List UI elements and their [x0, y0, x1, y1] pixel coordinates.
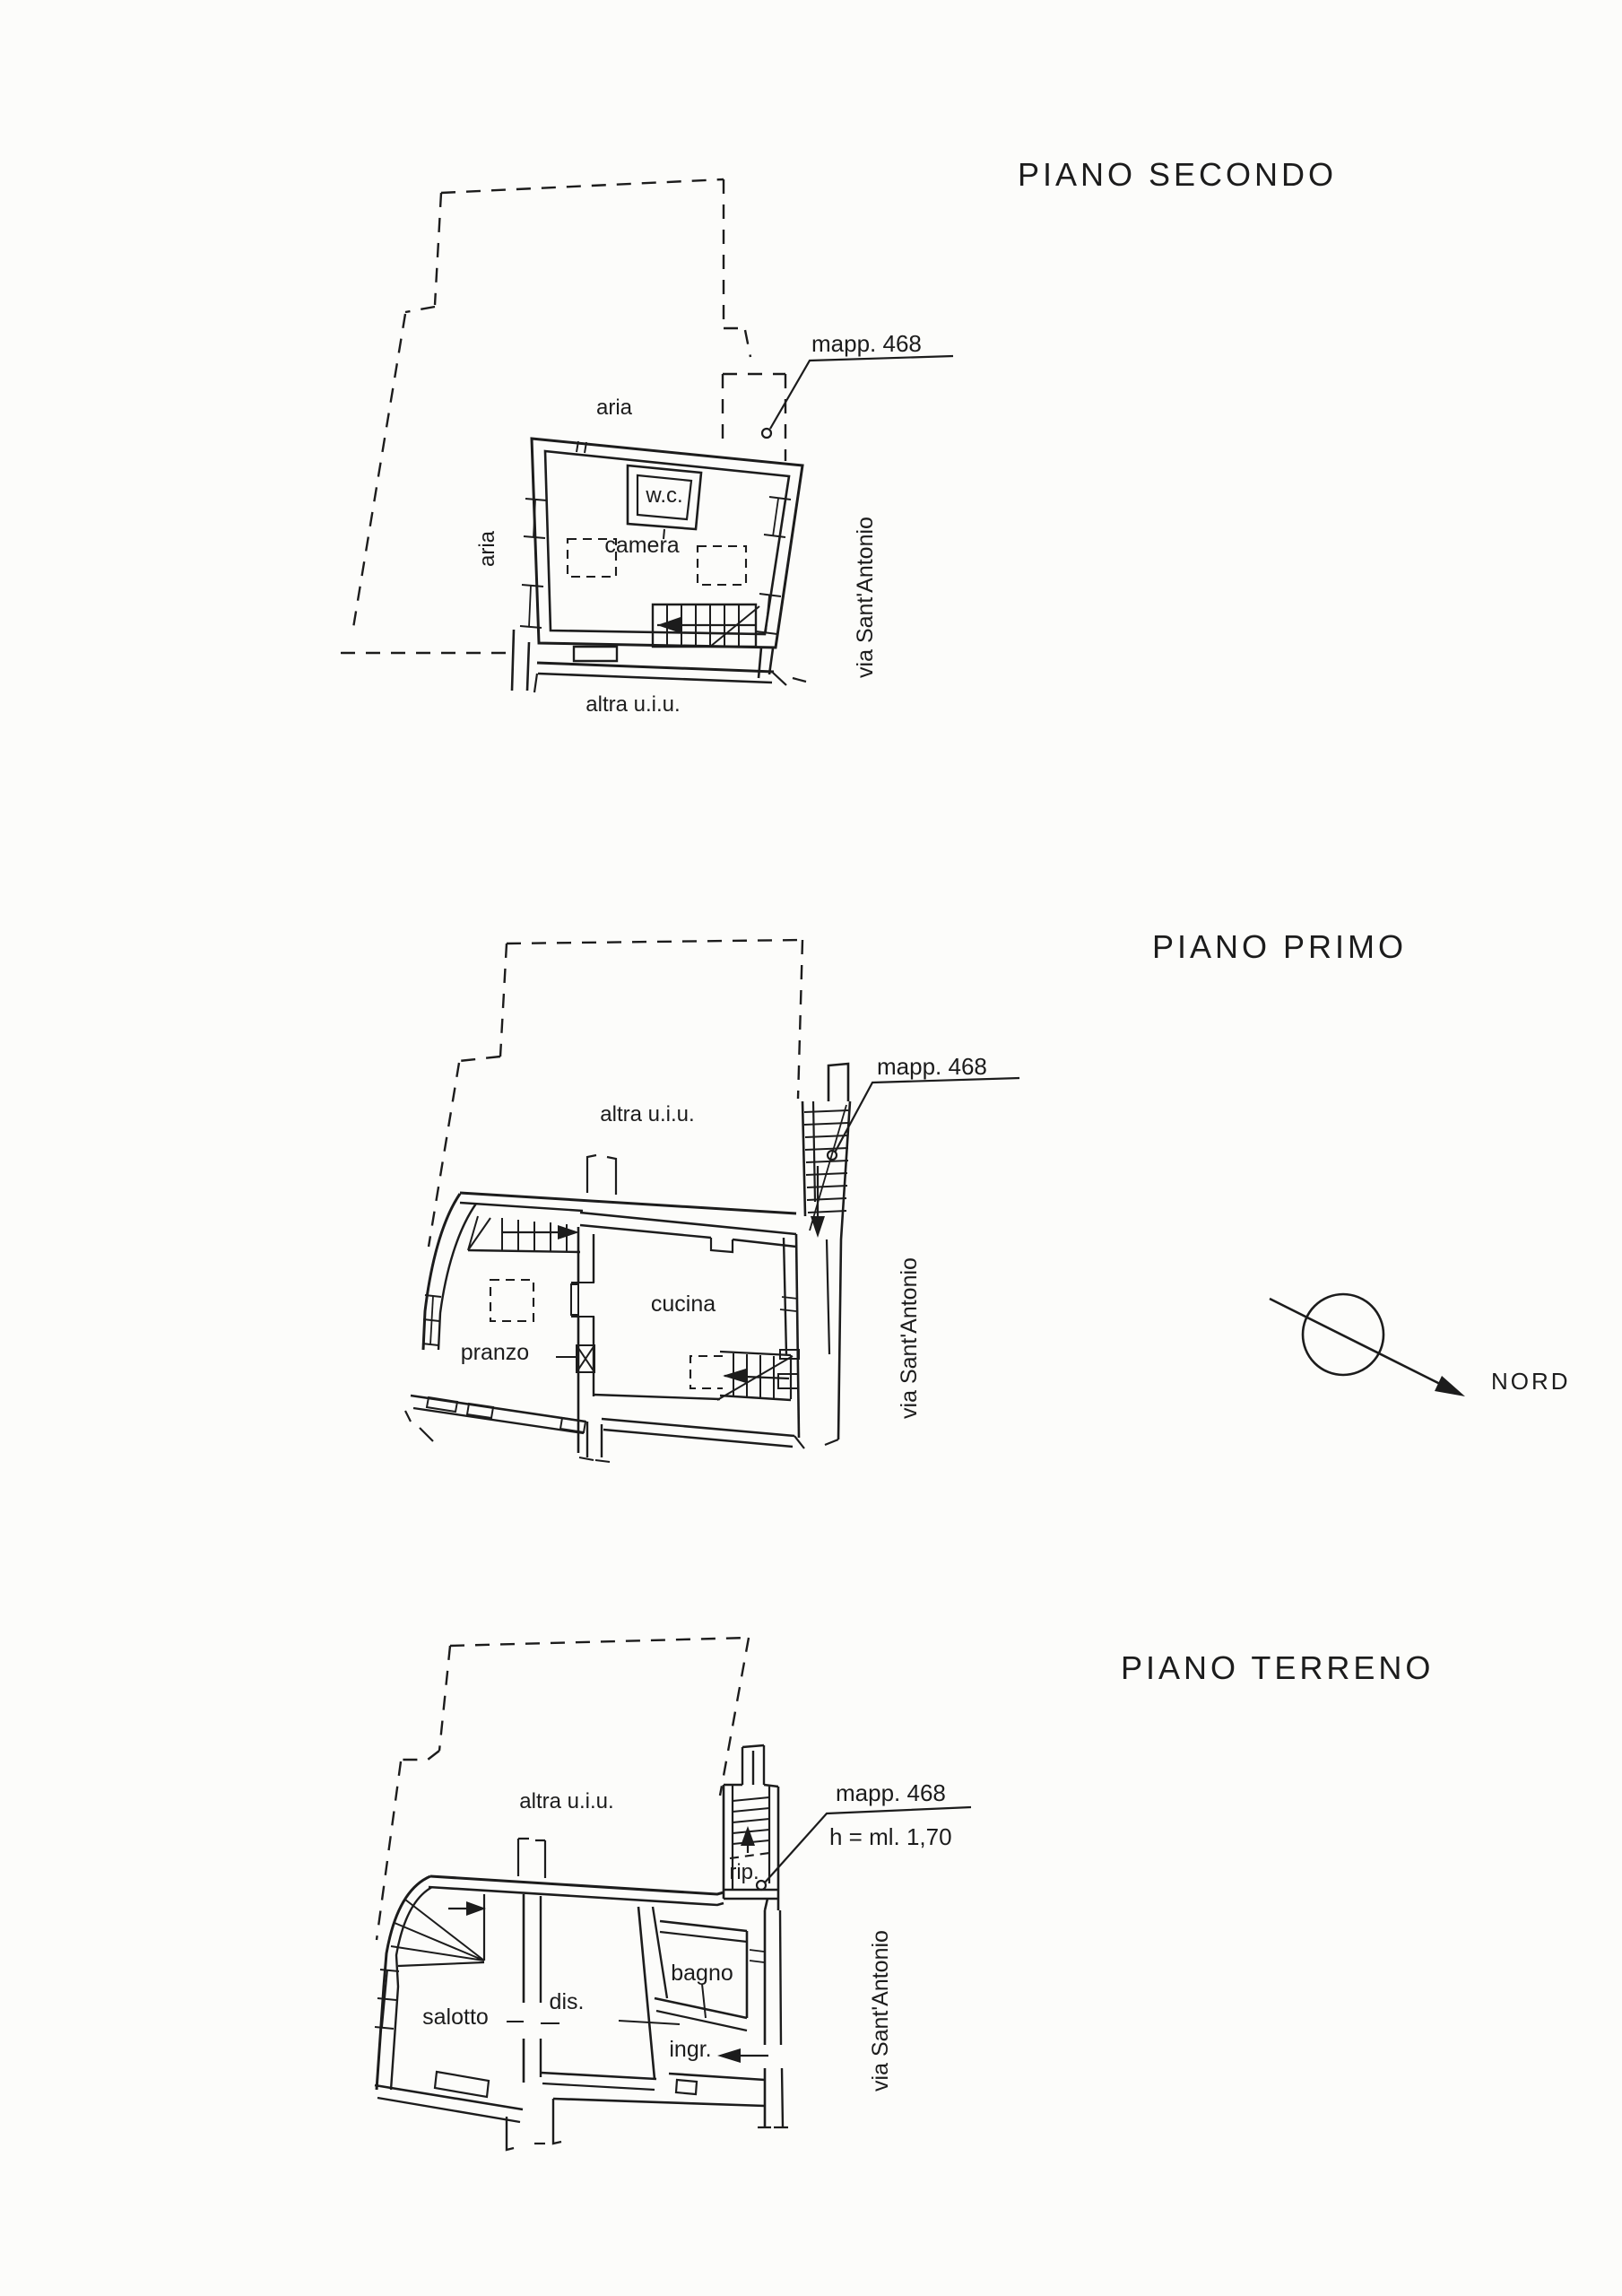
- mapp-label-primo: mapp. 468: [877, 1053, 987, 1080]
- room-label-bagno: bagno: [671, 1961, 733, 1986]
- north-compass: NORD: [1270, 1294, 1571, 1396]
- floor-title-secondo: PIANO SECONDO: [1018, 156, 1337, 193]
- stairs-terreno-winder: [391, 1894, 486, 1966]
- parcel-boundary-primo: [429, 940, 802, 1247]
- stairs-primo-cucina: [690, 1352, 793, 1400]
- dashed-opening-pranzo: [490, 1280, 533, 1321]
- floor-title-primo: PIANO PRIMO: [1152, 928, 1407, 965]
- stairs-primo-upper: [468, 1216, 580, 1252]
- stair-arrow-up: [741, 1826, 755, 1846]
- street-stairs-primo: [802, 1064, 850, 1445]
- parcel-boundary-secondo: [341, 179, 785, 653]
- stair-arrow-right: [558, 1225, 579, 1239]
- height-note-label: h = ml. 1,70: [829, 1823, 952, 1850]
- label-aria-left: aria: [475, 530, 499, 567]
- floorplan-document-page: PIANO SECONDO mapp. 468: [0, 0, 1622, 2296]
- stair-direction-arrow: [657, 617, 681, 633]
- room-label-pranzo: pranzo: [461, 1340, 529, 1365]
- street-label-primo: via Sant'Antonio: [897, 1257, 922, 1419]
- floorplan-drawing: PIANO SECONDO mapp. 468: [0, 0, 1622, 2296]
- room-label-cucina: cucina: [651, 1291, 716, 1317]
- label-aria-top: aria: [596, 396, 633, 420]
- label-altra-uiu-primo: altra u.i.u.: [600, 1102, 694, 1126]
- floor-secondo: PIANO SECONDO mapp. 468: [341, 156, 1337, 717]
- floor-title-terreno: PIANO TERRENO: [1121, 1649, 1434, 1686]
- mapp-label-secondo: mapp. 468: [811, 330, 922, 357]
- mapp-point-secondo: [762, 429, 771, 438]
- street-label-secondo: via Sant'Antonio: [853, 517, 878, 678]
- compass-arrowhead: [1435, 1376, 1465, 1396]
- stair-arrow-down: [811, 1216, 825, 1238]
- entrance-arrow: [717, 2048, 768, 2063]
- stair-arrow-right-terreno: [466, 1901, 486, 1916]
- room-label-dis: dis.: [550, 1989, 585, 2014]
- mapp-leader-secondo: [762, 356, 953, 438]
- room-label-camera: camera: [604, 533, 679, 558]
- floor-terreno: PIANO TERRENO mapp. 468 h = ml. 1,70 alt…: [375, 1638, 1434, 2150]
- label-altra-uiu-terreno: altra u.i.u.: [519, 1789, 613, 1813]
- label-altra-uiu-secondo: altra u.i.u.: [585, 692, 680, 717]
- building-walls-primo: [405, 1155, 804, 1462]
- mapp-leader-primo: [828, 1078, 1019, 1160]
- mapp-label-terreno: mapp. 468: [836, 1779, 946, 1806]
- room-label-wc: w.c.: [645, 483, 682, 508]
- floor-primo: PIANO PRIMO mapp. 468 altra u.i.u.: [405, 928, 1407, 1462]
- street-label-terreno: via Sant'Antonio: [868, 1930, 893, 2092]
- compass-arrow-line: [1270, 1299, 1456, 1392]
- north-label: NORD: [1491, 1368, 1571, 1395]
- room-label-ingr: ingr.: [669, 2037, 711, 2062]
- stairs-secondo: [653, 604, 759, 647]
- room-label-salotto: salotto: [422, 2005, 489, 2030]
- room-label-rip: rip.: [729, 1860, 759, 1884]
